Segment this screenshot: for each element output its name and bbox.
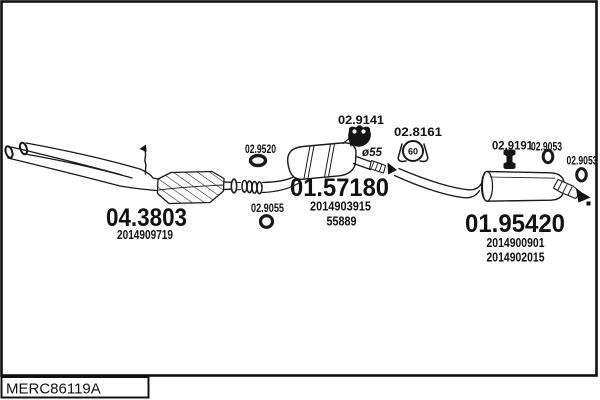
- drawing-code-plate: MERC86119A: [2, 377, 149, 398]
- reference-dot: [587, 202, 591, 206]
- oe-number2-centre-muffler: 55889: [327, 215, 357, 229]
- drawing-code-text: MERC86119A: [6, 381, 101, 398]
- part-label-clamp: 02.8161: [394, 125, 442, 139]
- exhaust-system-diagram: 02.9520 02.9055 04.3803 2014909719 01.57…: [0, 0, 600, 400]
- oe-number2-rear-muffler: 2014902015: [487, 251, 545, 265]
- part-label-hanger-rear: 02.9191: [492, 139, 533, 153]
- clamp-diameter-value: 60: [408, 147, 418, 157]
- catalyst-body: [158, 172, 225, 204]
- part-label-centre-muffler: 01.57180: [290, 174, 389, 202]
- part-label-ring-rear-outer: 02.9053: [567, 154, 598, 168]
- diagram-canvas: 02.9520 02.9055 04.3803 2014909719 01.57…: [0, 0, 600, 400]
- oe-number-centre-muffler: 2014903915: [310, 200, 371, 214]
- part-label-hanger-centre: 02.9141: [338, 113, 384, 127]
- oe-number-rear-muffler: 2014900901: [487, 236, 545, 250]
- oe-number-catalyst: 2014909719: [117, 228, 173, 242]
- part-label-ring-rear-inner: 02.9053: [531, 140, 562, 154]
- pipe-diameter-note: ø55: [362, 147, 383, 159]
- part-label-rear-muffler: 01.95420: [465, 210, 565, 238]
- part-label-gasket-front: 02.9520: [245, 142, 276, 156]
- part-label-ring-front: 02.9055: [251, 201, 284, 215]
